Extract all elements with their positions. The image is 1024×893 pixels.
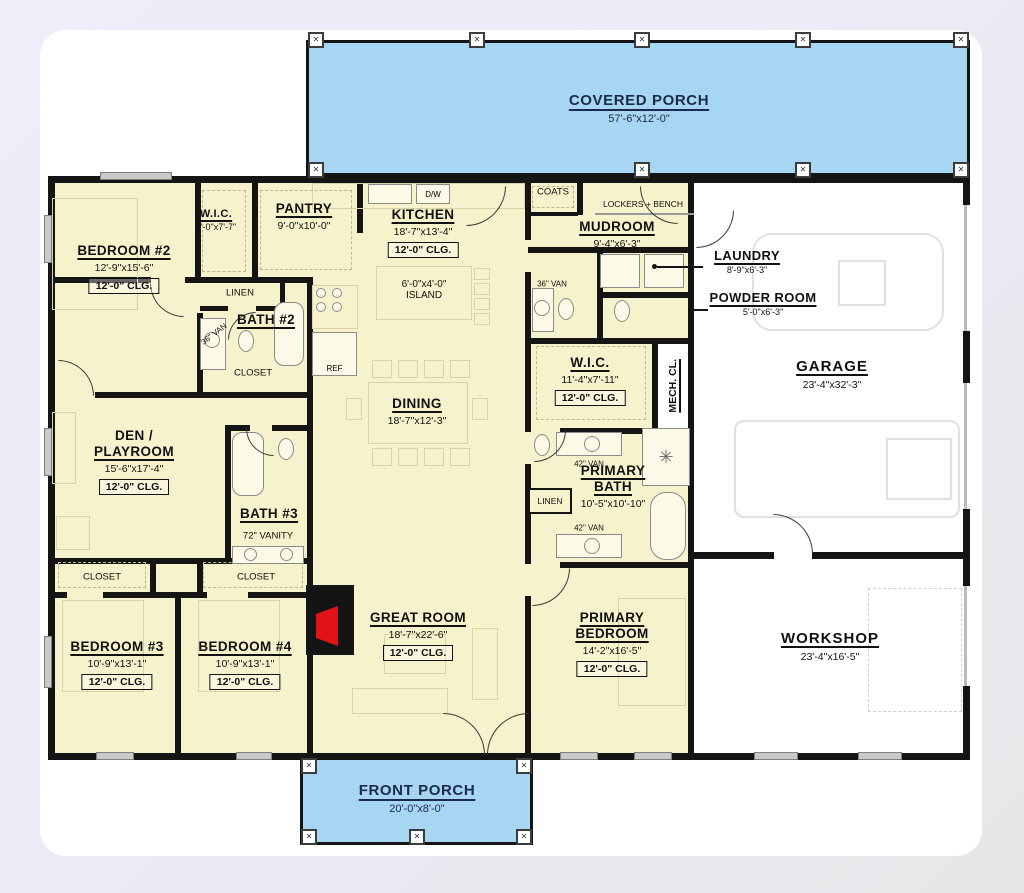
- ceiling-height: 12'-0" CLG.: [555, 390, 626, 406]
- sink: [584, 436, 600, 452]
- workshop-door-opening: [961, 586, 971, 686]
- shower-icon: ✳: [643, 429, 689, 485]
- room-dims: 4'-0"x7'-7": [196, 222, 236, 232]
- wall: [55, 592, 67, 598]
- room-name: PANTRY: [276, 201, 332, 217]
- van42-label: 42" VAN: [574, 524, 604, 533]
- room-dims: 11'-4"x7'-11": [555, 374, 626, 386]
- window: [100, 172, 172, 180]
- vanity: [232, 546, 304, 564]
- room-label-primary-bedroom: PRIMARY BEDROOM 14'-2"x16'-5" 12'-0" CLG…: [575, 610, 648, 677]
- room-label-dining: DINING 18'-7"x12'-3": [388, 396, 447, 427]
- room-label-bedroom2: BEDROOM #2 12'-9"x15'-6" 12'-0" CLG.: [77, 243, 170, 294]
- dishwasher: D/W: [416, 184, 450, 204]
- dining-chair: [372, 448, 392, 466]
- room-name: DINING: [388, 396, 447, 412]
- coats-label: COATS: [537, 187, 569, 198]
- room-dims: 9'-0"x10'-0": [276, 220, 332, 232]
- room-label-covered-porch: COVERED PORCH 57'-6"x12'-0": [569, 92, 709, 125]
- toilet: [614, 300, 630, 322]
- post-x-icon: ✕: [313, 36, 320, 44]
- dining-chair: [424, 448, 444, 466]
- room-name: DEN /: [94, 428, 174, 444]
- room-dims: 23'-4"x32'-3": [796, 379, 868, 391]
- dining-chair: [450, 360, 470, 378]
- wall: [195, 183, 201, 283]
- room-dims: 14'-2"x16'-5": [575, 645, 648, 657]
- room-label-mech-closet: MECH. CL.: [667, 359, 679, 413]
- room-name: GREAT ROOM: [370, 610, 466, 626]
- room-name: PLAYROOM: [94, 444, 174, 460]
- room-name: BATH #2: [237, 312, 295, 328]
- room-name: BEDROOM #2: [77, 243, 170, 259]
- cooktop-burner: [332, 302, 342, 312]
- room-dims: 18'-7"x12'-3": [388, 415, 447, 427]
- leader-dot: [652, 264, 657, 269]
- island-label: ISLAND: [376, 290, 472, 301]
- wall: [272, 425, 313, 431]
- workshop-area-dashed: [868, 588, 962, 712]
- room-name: BEDROOM #4: [198, 639, 291, 655]
- room-dims: 10'-9"x13'-1": [198, 658, 291, 670]
- cooktop-burner: [316, 302, 326, 312]
- room-name: KITCHEN: [388, 207, 459, 223]
- den-chair: [56, 516, 90, 550]
- window: [44, 636, 52, 688]
- closet-label: CLOSET: [237, 572, 275, 583]
- porch-post: ✕: [953, 162, 969, 178]
- window: [96, 752, 134, 760]
- mech-closet: MECH. CL.: [658, 344, 688, 428]
- cooktop-burner: [316, 288, 326, 298]
- room-dims: 18'-7"x13'-4": [388, 226, 459, 238]
- closet-label: CLOSET: [83, 572, 121, 583]
- porch-post: ✕: [469, 32, 485, 48]
- room-name: FRONT PORCH: [359, 782, 476, 800]
- room-name: W.I.C.: [196, 208, 236, 221]
- washer: [600, 254, 640, 288]
- room-label-powder-room: POWDER ROOM 5'-0"x6'-3": [710, 290, 817, 317]
- room-label-primary-bath: PRIMARY BATH 10'-5"x10'-10": [581, 463, 646, 510]
- lockers-bench-label: LOCKERS + BENCH: [603, 199, 683, 209]
- sofa: [352, 688, 448, 714]
- garage-door-opening: [961, 205, 971, 331]
- room-name: PRIMARY BEDROOM: [575, 610, 648, 642]
- shower: ✳: [642, 428, 690, 486]
- room-label-bedroom4: BEDROOM #4 10'-9"x13'-1" 12'-0" CLG.: [198, 639, 291, 690]
- leader-line: [657, 266, 703, 268]
- room-name: LAUNDRY: [714, 248, 780, 264]
- garage-door-opening: [961, 383, 971, 509]
- sink: [280, 548, 293, 561]
- porch-post: ✕: [795, 162, 811, 178]
- porch-post: ✕: [516, 758, 532, 774]
- room-label-bedroom3: BEDROOM #3 10'-9"x13'-1" 12'-0" CLG.: [70, 639, 163, 690]
- ceiling-height: 12'-0" CLG.: [82, 674, 153, 690]
- room-dims: 9'-4"x6'-3": [579, 238, 655, 250]
- window: [560, 752, 598, 760]
- post-x-icon: ✕: [958, 166, 965, 174]
- wall: [95, 392, 310, 398]
- wall: [103, 592, 207, 598]
- sofa: [472, 628, 498, 700]
- toilet: [558, 298, 574, 320]
- dishwasher-label: D/W: [425, 190, 441, 199]
- wall: [150, 560, 156, 596]
- car-outline: [838, 260, 886, 306]
- room-name: WORKSHOP: [781, 630, 879, 648]
- room-label-bath3: BATH #3: [240, 506, 298, 522]
- post-x-icon: ✕: [521, 762, 528, 770]
- wall: [307, 398, 313, 564]
- ceiling-height: 12'-0" CLG.: [210, 674, 281, 690]
- room-name: BATH #3: [240, 506, 298, 522]
- post-x-icon: ✕: [639, 166, 646, 174]
- room-label-laundry: LAUNDRY 8'-9"x6'-3": [714, 248, 780, 275]
- wall: [597, 292, 694, 298]
- island-stool: [474, 313, 490, 325]
- room-dims: 20'-0"x8'-0": [359, 803, 476, 815]
- porch-post: ✕: [301, 829, 317, 845]
- floor-plan: COVERED PORCH 57'-6"x12'-0" FRONT PORCH …: [0, 0, 1024, 893]
- room-dims: 12'-9"x15'-6": [77, 262, 170, 274]
- cooktop-burner: [332, 288, 342, 298]
- post-x-icon: ✕: [800, 36, 807, 44]
- porch-post: ✕: [308, 162, 324, 178]
- room-dims: 10'-5"x10'-10": [581, 498, 646, 510]
- room-name: MUDROOM: [579, 219, 655, 235]
- dining-chair: [398, 360, 418, 378]
- room-dims: 18'-7"x22'-6": [370, 629, 466, 641]
- closet-label: CLOSET: [234, 368, 272, 379]
- room-label-island: 6'-0"x4'-0" ISLAND: [376, 279, 472, 301]
- dining-chair: [450, 448, 470, 466]
- porch-post: ✕: [953, 32, 969, 48]
- dining-chair: [424, 360, 444, 378]
- wall: [252, 183, 258, 283]
- linen-closet: LINEN: [528, 488, 572, 514]
- post-x-icon: ✕: [521, 833, 528, 841]
- post-x-icon: ✕: [306, 762, 313, 770]
- toilet: [278, 438, 294, 460]
- refrigerator: REF: [312, 332, 357, 376]
- wall: [528, 212, 578, 216]
- porch-post: ✕: [409, 829, 425, 845]
- island-stool: [474, 298, 490, 310]
- room-label-kitchen: KITCHEN 18'-7"x13'-4" 12'-0" CLG.: [388, 207, 459, 258]
- linen-label: LINEN: [226, 288, 254, 299]
- wall: [560, 562, 694, 568]
- room-dims: 5'-0"x6'-3": [710, 307, 817, 317]
- window: [858, 752, 902, 760]
- room-label-wic2: W.I.C. 11'-4"x7'-11" 12'-0" CLG.: [555, 355, 626, 406]
- wall: [225, 425, 231, 564]
- linen-label: LINEN: [537, 496, 562, 506]
- room-name: GARAGE: [796, 358, 868, 376]
- post-x-icon: ✕: [800, 166, 807, 174]
- porch-post: ✕: [516, 829, 532, 845]
- porch-post: ✕: [795, 32, 811, 48]
- lockers-bench-line: [595, 213, 694, 215]
- island-dims: 6'-0"x4'-0": [376, 279, 472, 290]
- dryer: [644, 254, 684, 288]
- porch-post: ✕: [308, 32, 324, 48]
- room-name: W.I.C.: [555, 355, 626, 371]
- room-name: BEDROOM #3: [70, 639, 163, 655]
- ceiling-height: 12'-0" CLG.: [577, 661, 648, 677]
- den-sofa: [52, 412, 76, 484]
- room-dims: 23'-4"x16'-5": [781, 651, 879, 663]
- post-x-icon: ✕: [306, 833, 313, 841]
- window: [44, 215, 52, 263]
- sink: [584, 538, 600, 554]
- room-label-workshop: WORKSHOP 23'-4"x16'-5": [781, 630, 879, 663]
- wall: [577, 183, 583, 215]
- ceiling-height: 12'-0" CLG.: [383, 645, 454, 661]
- sink: [244, 548, 257, 561]
- dining-chair: [372, 360, 392, 378]
- post-x-icon: ✕: [313, 166, 320, 174]
- window: [236, 752, 272, 760]
- van36-label: 36" VAN: [537, 280, 567, 289]
- window: [634, 752, 672, 760]
- room-label-mudroom: MUDROOM 9'-4"x6'-3": [579, 219, 655, 250]
- porch-post: ✕: [634, 162, 650, 178]
- room-name: COVERED PORCH: [569, 92, 709, 110]
- ceiling-height: 12'-0" CLG.: [388, 242, 459, 258]
- room-name: POWDER ROOM: [710, 290, 817, 306]
- window: [44, 428, 52, 476]
- van42-label: 42" VAN: [574, 460, 604, 469]
- sink: [534, 300, 550, 316]
- post-x-icon: ✕: [958, 36, 965, 44]
- vanity-label: 72" VANITY: [243, 531, 293, 542]
- island-stool: [474, 283, 490, 295]
- leader-line: [694, 309, 708, 311]
- wall: [525, 272, 531, 432]
- dining-chair: [472, 398, 488, 420]
- porch-post: ✕: [634, 32, 650, 48]
- wall: [175, 596, 181, 753]
- room-label-wic1: W.I.C. 4'-0"x7'-7": [196, 208, 236, 232]
- room-dims: 15'-6"x17'-4": [94, 463, 174, 475]
- room-dims: 8'-9"x6'-3": [714, 265, 780, 275]
- room-label-den-playroom: DEN / PLAYROOM 15'-6"x17'-4" 12'-0" CLG.: [94, 428, 174, 495]
- refrigerator-label: REF: [327, 364, 343, 373]
- bathtub: [650, 492, 686, 560]
- window: [754, 752, 798, 760]
- truck-outline: [886, 438, 952, 500]
- room-label-pantry: PANTRY 9'-0"x10'-0": [276, 201, 332, 232]
- post-x-icon: ✕: [414, 833, 421, 841]
- room-label-bath2: BATH #2: [237, 312, 295, 328]
- wall: [185, 277, 312, 283]
- ceiling-height: 12'-0" CLG.: [89, 278, 160, 294]
- post-x-icon: ✕: [474, 36, 481, 44]
- dining-chair: [398, 448, 418, 466]
- room-label-garage: GARAGE 23'-4"x32'-3": [796, 358, 868, 391]
- wall: [812, 552, 970, 559]
- kitchen-sink: [368, 184, 412, 204]
- room-label-great-room: GREAT ROOM 18'-7"x22'-6" 12'-0" CLG.: [370, 610, 466, 661]
- room-dims: 10'-9"x13'-1": [70, 658, 163, 670]
- room-dims: 57'-6"x12'-0": [569, 113, 709, 125]
- wall: [200, 306, 228, 311]
- dining-chair: [346, 398, 362, 420]
- room-label-front-porch: FRONT PORCH 20'-0"x8'-0": [359, 782, 476, 815]
- island-stool: [474, 268, 490, 280]
- ceiling-height: 12'-0" CLG.: [99, 479, 170, 495]
- wall: [248, 592, 312, 598]
- porch-post: ✕: [301, 758, 317, 774]
- post-x-icon: ✕: [639, 36, 646, 44]
- wall: [694, 552, 774, 559]
- wall: [525, 464, 531, 564]
